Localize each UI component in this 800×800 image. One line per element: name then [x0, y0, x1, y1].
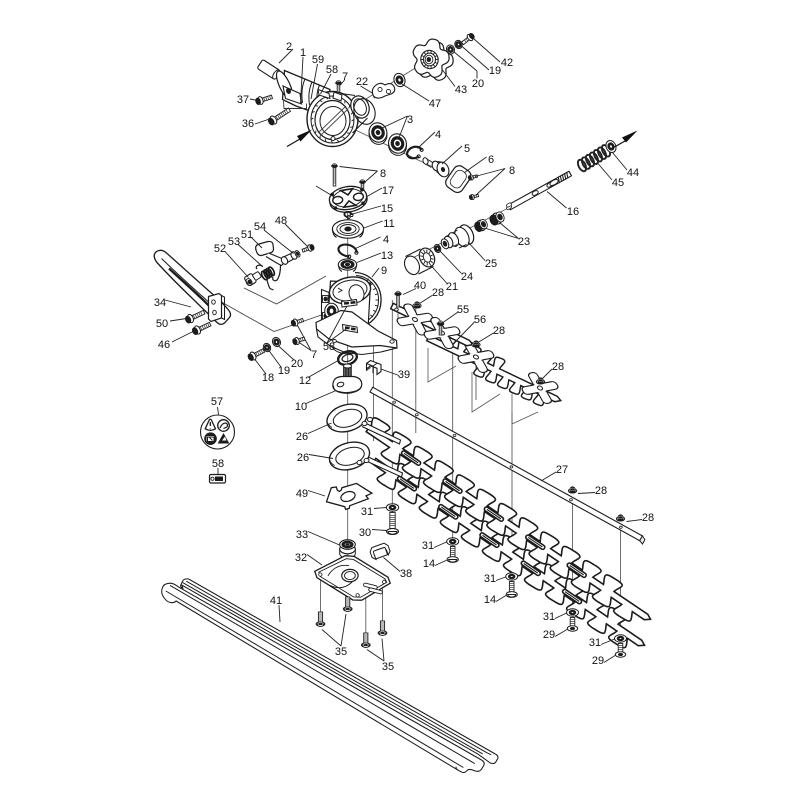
- svg-text:13: 13: [381, 250, 393, 262]
- svg-text:36: 36: [242, 118, 254, 130]
- svg-text:19: 19: [489, 65, 501, 77]
- svg-text:26: 26: [296, 431, 308, 443]
- svg-text:57: 57: [211, 396, 223, 408]
- svg-text:14: 14: [423, 558, 435, 570]
- svg-text:27: 27: [556, 464, 568, 476]
- svg-text:58: 58: [212, 458, 224, 470]
- svg-text:53: 53: [228, 236, 240, 248]
- svg-text:15: 15: [381, 203, 393, 215]
- svg-text:43: 43: [455, 84, 467, 96]
- svg-text:55: 55: [457, 304, 469, 316]
- svg-text:16: 16: [567, 206, 579, 218]
- svg-text:26: 26: [297, 452, 309, 464]
- svg-text:20: 20: [291, 358, 303, 370]
- svg-text:1: 1: [300, 47, 306, 59]
- svg-text:7: 7: [342, 71, 348, 83]
- svg-text:14: 14: [484, 594, 496, 606]
- svg-text:7: 7: [311, 349, 317, 361]
- svg-text:49: 49: [296, 488, 308, 500]
- svg-text:5: 5: [464, 143, 470, 155]
- svg-text:28: 28: [642, 512, 654, 524]
- svg-text:23: 23: [518, 236, 530, 248]
- svg-text:35: 35: [335, 646, 347, 658]
- svg-text:24: 24: [461, 271, 473, 283]
- svg-text:47: 47: [429, 98, 441, 110]
- svg-text:31: 31: [589, 637, 601, 649]
- svg-text:18: 18: [262, 372, 274, 384]
- svg-text:46: 46: [158, 339, 170, 351]
- svg-text:52: 52: [214, 243, 226, 255]
- svg-text:12: 12: [299, 375, 311, 387]
- svg-text:58: 58: [326, 64, 338, 76]
- svg-text:30: 30: [359, 527, 371, 539]
- svg-text:34: 34: [154, 297, 166, 309]
- svg-text:33: 33: [296, 529, 308, 541]
- svg-text:20: 20: [472, 78, 484, 90]
- svg-text:8: 8: [380, 168, 386, 180]
- svg-text:19: 19: [278, 365, 290, 377]
- svg-text:25: 25: [485, 258, 497, 270]
- svg-text:29: 29: [592, 655, 604, 667]
- svg-text:2: 2: [286, 41, 292, 53]
- svg-text:8: 8: [509, 165, 515, 177]
- svg-text:11: 11: [383, 218, 394, 230]
- svg-text:4: 4: [435, 129, 441, 141]
- svg-text:31: 31: [543, 611, 555, 623]
- svg-text:31: 31: [422, 540, 434, 552]
- svg-text:42: 42: [501, 57, 513, 69]
- svg-text:28: 28: [595, 485, 607, 497]
- svg-text:41: 41: [270, 595, 282, 607]
- svg-text:59: 59: [312, 54, 324, 66]
- svg-text:4: 4: [383, 234, 389, 246]
- svg-text:9: 9: [381, 265, 387, 277]
- svg-text:50: 50: [156, 318, 168, 330]
- svg-text:39: 39: [398, 369, 410, 381]
- svg-text:17: 17: [382, 185, 394, 197]
- svg-text:28: 28: [432, 287, 444, 299]
- svg-text:29: 29: [543, 629, 555, 641]
- svg-text:35: 35: [382, 661, 394, 673]
- svg-text:6: 6: [488, 154, 494, 166]
- svg-text:48: 48: [275, 215, 287, 227]
- svg-text:38: 38: [400, 568, 412, 580]
- svg-text:3: 3: [407, 114, 413, 126]
- svg-text:40: 40: [414, 280, 426, 292]
- svg-text:51: 51: [241, 229, 253, 241]
- svg-text:45: 45: [612, 177, 624, 189]
- svg-text:31: 31: [361, 506, 373, 518]
- svg-text:58: 58: [323, 341, 335, 353]
- svg-text:22: 22: [356, 76, 368, 88]
- svg-text:54: 54: [254, 221, 266, 233]
- svg-text:32: 32: [295, 552, 307, 564]
- svg-text:21: 21: [446, 281, 458, 293]
- svg-text:56: 56: [474, 314, 486, 326]
- svg-text:37: 37: [237, 94, 249, 106]
- svg-text:10: 10: [295, 401, 307, 413]
- svg-text:28: 28: [552, 361, 564, 373]
- svg-text:44: 44: [627, 167, 639, 179]
- svg-text:31: 31: [484, 573, 496, 585]
- svg-text:28: 28: [493, 325, 505, 337]
